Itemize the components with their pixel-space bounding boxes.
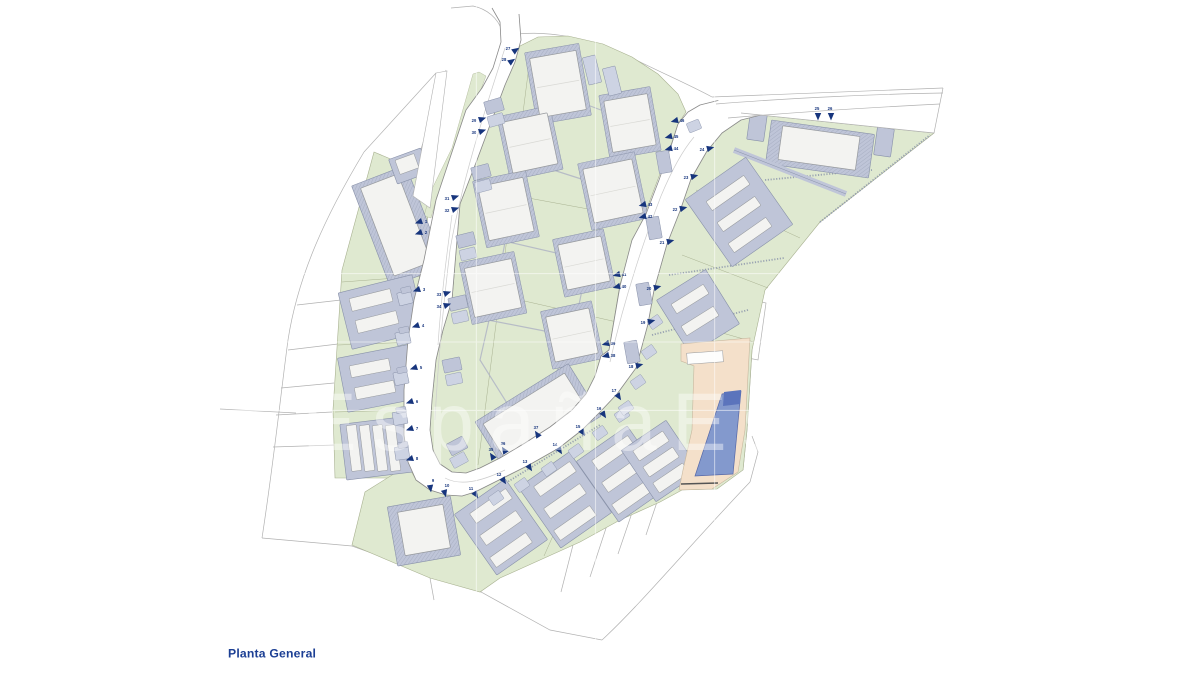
svg-text:34: 34: [437, 304, 442, 309]
svg-text:20: 20: [647, 286, 652, 291]
svg-text:11: 11: [469, 486, 474, 491]
svg-text:24: 24: [700, 147, 705, 152]
svg-text:10: 10: [445, 483, 450, 488]
svg-text:Planta General: Planta General: [228, 647, 316, 661]
svg-text:28: 28: [502, 57, 507, 62]
svg-text:41: 41: [622, 272, 627, 277]
svg-text:25: 25: [815, 106, 820, 111]
svg-text:40: 40: [622, 284, 627, 289]
svg-text:31: 31: [445, 196, 450, 201]
svg-text:33: 33: [437, 292, 442, 297]
svg-text:46: 46: [680, 118, 685, 123]
svg-text:22: 22: [673, 207, 678, 212]
svg-text:42: 42: [648, 214, 653, 219]
svg-text:38: 38: [611, 353, 616, 358]
svg-text:43: 43: [648, 202, 653, 207]
svg-text:27: 27: [506, 46, 511, 51]
svg-text:32: 32: [445, 208, 450, 213]
svg-text:23: 23: [684, 175, 689, 180]
svg-text:45: 45: [674, 134, 679, 139]
svg-text:18: 18: [629, 364, 634, 369]
svg-text:26: 26: [828, 106, 833, 111]
svg-text:12: 12: [497, 472, 502, 477]
svg-text:44: 44: [674, 146, 679, 151]
svg-text:19: 19: [641, 320, 646, 325]
svg-text:21: 21: [660, 240, 665, 245]
